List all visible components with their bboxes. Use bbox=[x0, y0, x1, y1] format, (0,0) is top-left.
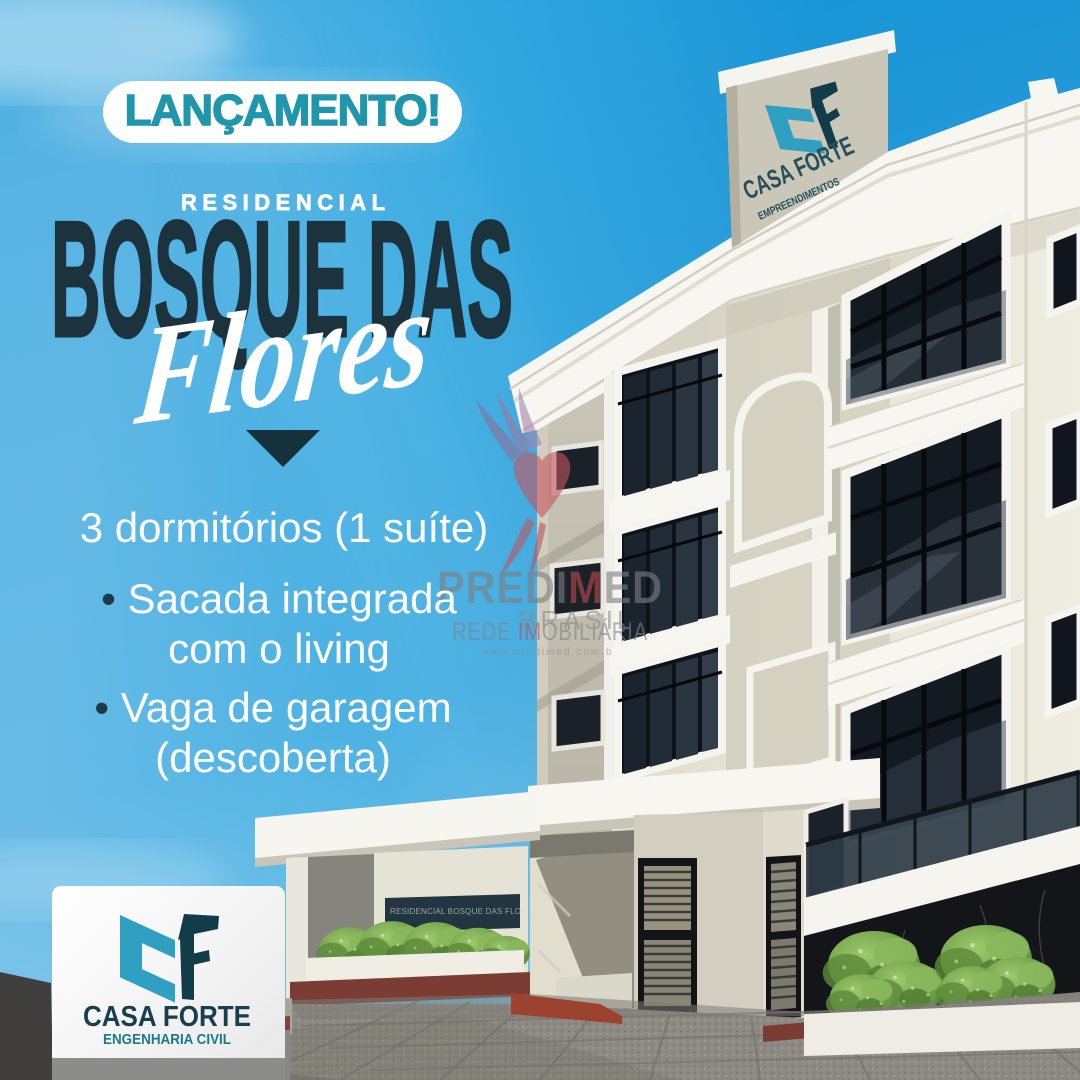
svg-text:RESIDENCIAL BOSQUE DAS FLO: RESIDENCIAL BOSQUE DAS FLO bbox=[390, 907, 521, 916]
